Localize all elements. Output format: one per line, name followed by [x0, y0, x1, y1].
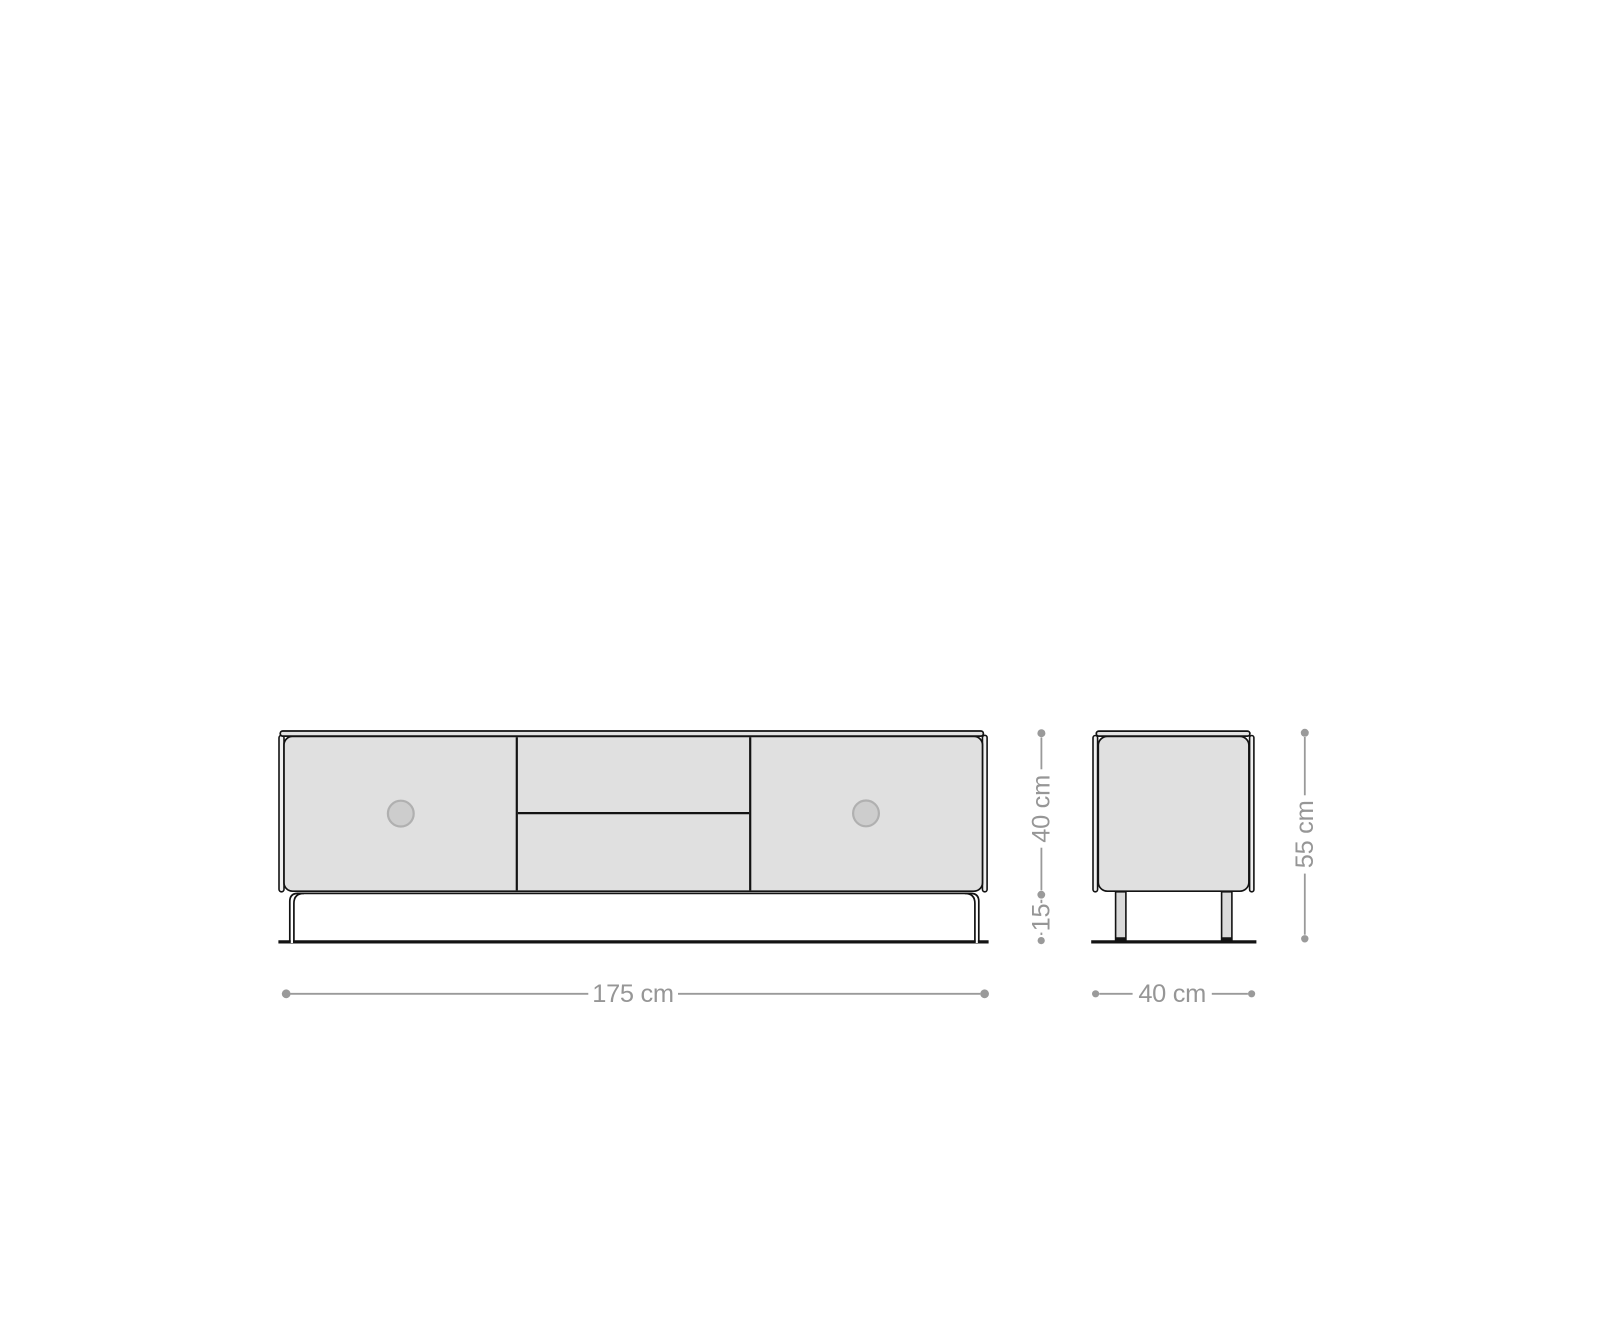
svg-text:40 cm: 40 cm: [1138, 980, 1206, 1008]
svg-text:40 cm: 40 cm: [1027, 775, 1055, 843]
svg-text:55 cm: 55 cm: [1291, 801, 1319, 869]
svg-text:175 cm: 175 cm: [592, 980, 673, 1008]
svg-text:15: 15: [1027, 904, 1055, 932]
